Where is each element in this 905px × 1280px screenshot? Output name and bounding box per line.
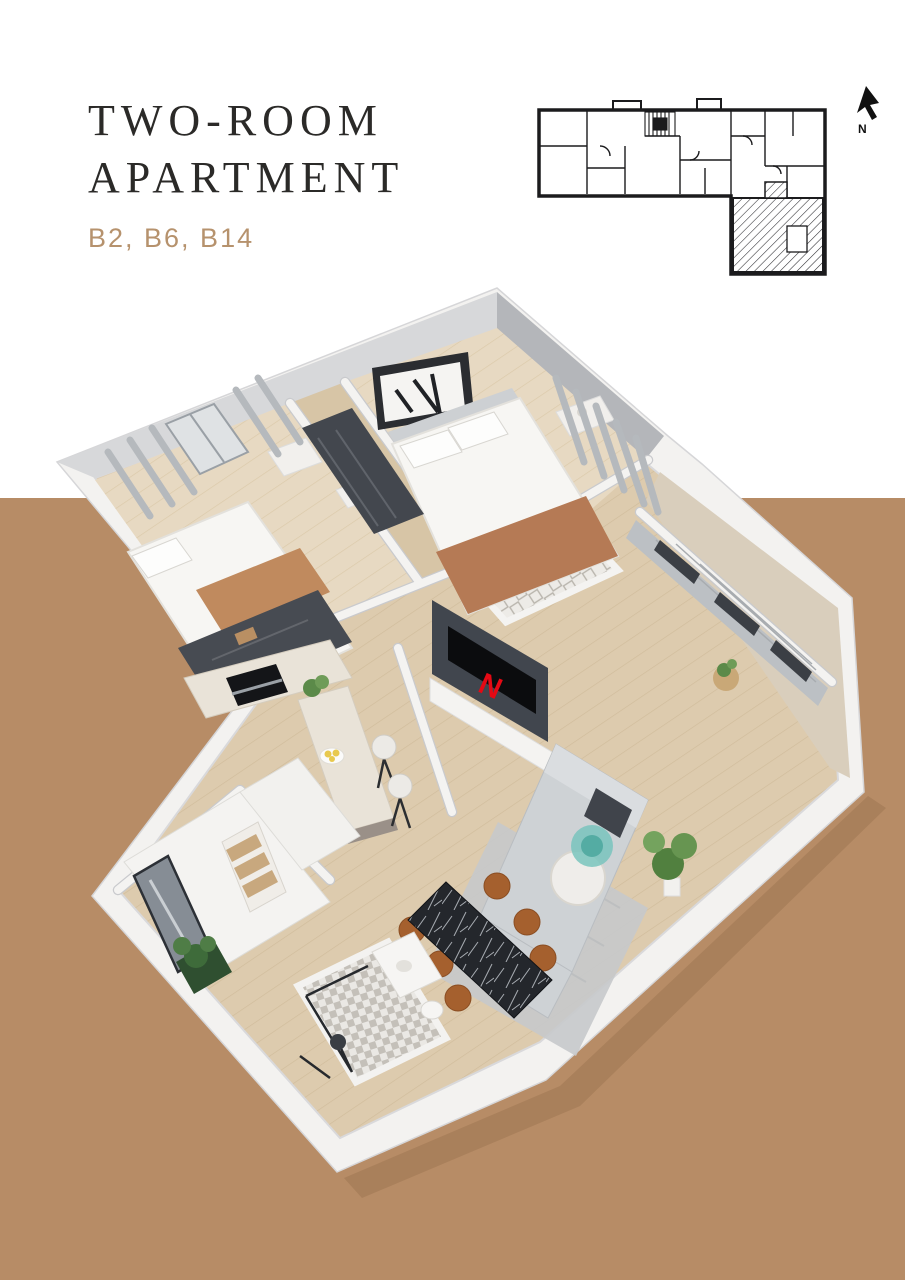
apartment-poster: TWO-ROOM APARTMENT B2, B6, B14 N <box>0 0 905 1280</box>
apartment-3d-render: N <box>0 0 905 1280</box>
shower-head <box>330 1034 346 1050</box>
toilet <box>421 1001 443 1019</box>
dining-chair <box>445 985 471 1011</box>
dining-chair <box>514 909 540 935</box>
dining-chair <box>484 873 510 899</box>
sink <box>396 960 412 972</box>
